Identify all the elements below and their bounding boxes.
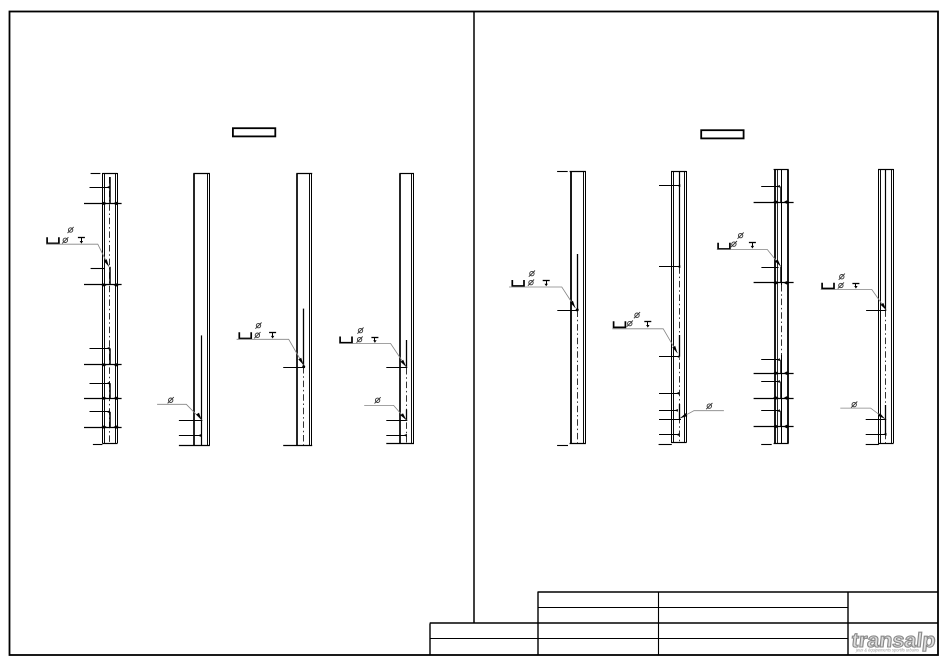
svg-text:jeux & équipements sportifs ur: jeux & équipements sportifs urbains [855,647,920,652]
